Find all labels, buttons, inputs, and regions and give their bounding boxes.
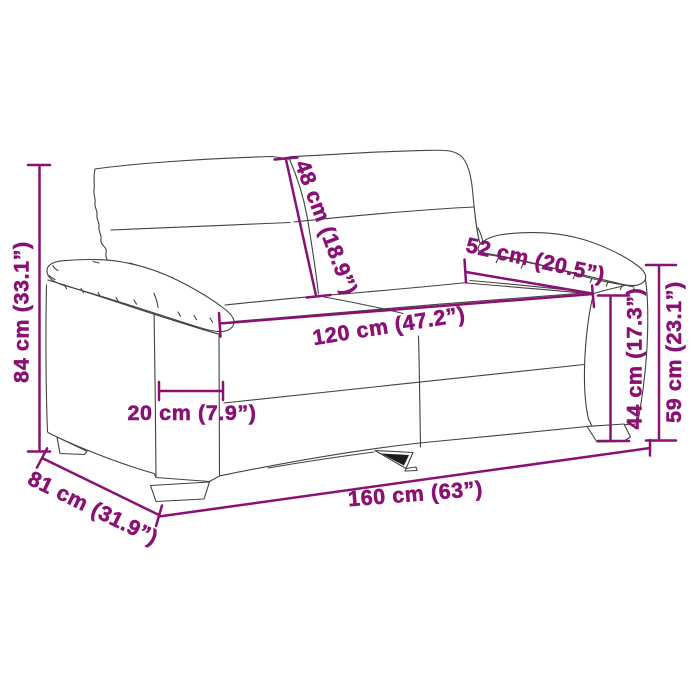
svg-text:59 cm (23.1”): 59 cm (23.1”) <box>662 281 686 423</box>
svg-text:84 cm (33.1”): 84 cm (33.1”) <box>10 241 34 383</box>
svg-text:81 cm (31.9”): 81 cm (31.9”) <box>24 466 162 550</box>
svg-text:44 cm (17.3”): 44 cm (17.3”) <box>623 288 647 430</box>
svg-text:20 cm (7.9”): 20 cm (7.9”) <box>127 401 256 425</box>
svg-text:160 cm (63”): 160 cm (63”) <box>347 477 484 512</box>
